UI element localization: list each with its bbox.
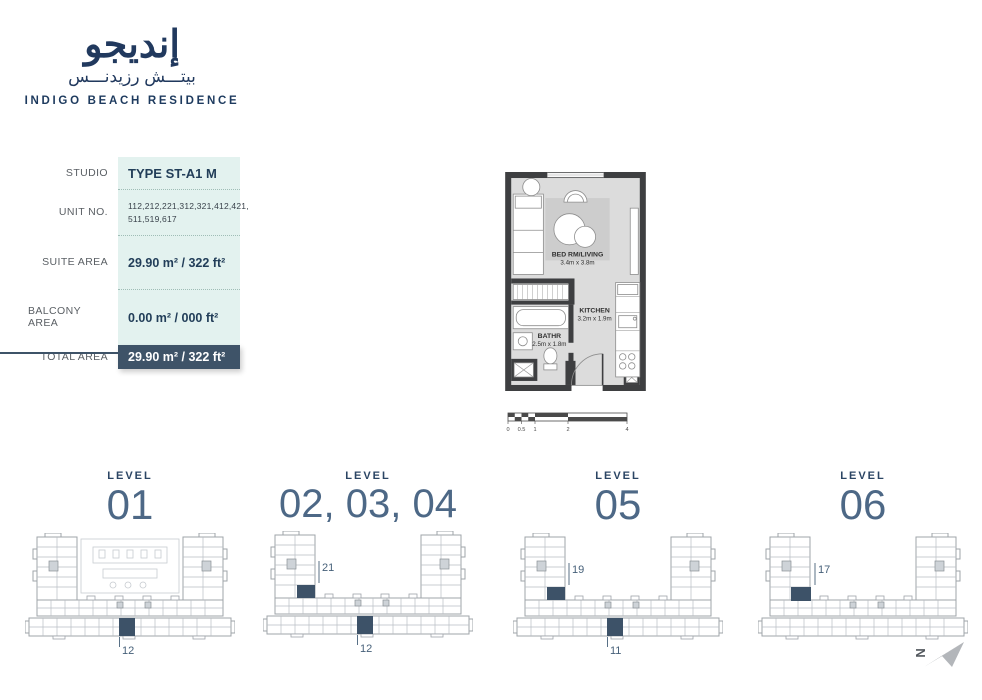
spec-value-balcony-area: 0.00 m² / 000 ft² <box>118 289 240 345</box>
highlight-unit <box>357 616 373 634</box>
level-block-01: LEVEL 01 12 <box>25 470 235 659</box>
wardrobe <box>513 285 568 300</box>
spec-value-suite-area: 29.90 m² / 322 ft² <box>118 235 240 289</box>
logo-arabic-main: إنديجو <box>20 26 244 66</box>
total-area-rule <box>0 352 118 354</box>
logo-arabic-sub: بيتـــش رزيدنـــس <box>20 67 244 87</box>
side-table <box>523 179 540 196</box>
room-label-kitchen: KITCHEN <box>579 308 609 315</box>
scale-tick-0: 0 <box>506 427 509 433</box>
highlight-unit <box>791 587 811 601</box>
level-block-020304: LEVEL 02, 03, 04 21 12 <box>263 470 473 657</box>
scale-bar: 0 0.5 1 2 4 <box>506 412 630 436</box>
level-title: LEVEL <box>263 470 473 482</box>
key-plan-level-01: 12 <box>25 533 235 659</box>
highlight-unit <box>119 618 135 636</box>
spec-value-type: TYPE ST-A1 M <box>118 157 240 189</box>
ottoman <box>574 226 595 247</box>
unit-number: 11 <box>610 645 621 657</box>
north-arrow-icon: N <box>910 640 968 670</box>
scale-tick-1: 1 <box>533 427 536 433</box>
key-plan-level-05: 19 11 <box>513 533 723 659</box>
unit-number: 19 <box>572 564 584 576</box>
spec-label-studio: STUDIO <box>28 157 118 189</box>
spec-label-balcony-area: BALCONY AREA <box>28 289 118 345</box>
highlight-unit <box>547 587 565 600</box>
spec-label-unit-no: UNIT NO. <box>28 189 118 235</box>
scale-tick-4: 4 <box>625 427 628 433</box>
brand-name: INDIGO BEACH RESIDENCE <box>20 95 244 107</box>
level-number-05: 05 <box>513 483 723 527</box>
spec-value-total-area: 29.90 m² / 322 ft² <box>118 345 240 369</box>
unit-floor-plan: BED RM/LIVING 3.4m x 3.8m KITCHEN 3.2m x… <box>505 172 646 391</box>
unit-spec-table: STUDIO TYPE ST-A1 M UNIT NO. 112,212,221… <box>28 157 240 369</box>
brochure-page: إنديجو بيتـــش رزيدنـــس INDIGO BEACH RE… <box>0 0 982 700</box>
spec-label-suite-area: SUITE AREA <box>28 235 118 289</box>
toilet <box>544 348 557 364</box>
brand-logo: إنديجو بيتـــش رزيدنـــس INDIGO BEACH RE… <box>20 26 244 107</box>
level-number-06: 06 <box>758 483 968 527</box>
bench <box>630 208 638 274</box>
north-letter: N <box>913 648 928 657</box>
room-label-bedliving: BED RM/LIVING <box>552 251 604 258</box>
unit-number: 17 <box>818 564 830 576</box>
key-plan-level-020304: 21 12 <box>263 531 473 657</box>
room-label-bathroom: BATHR <box>538 333 561 340</box>
level-block-06: LEVEL 06 17 <box>758 470 968 659</box>
unit-number: 12 <box>360 643 372 655</box>
level-number-01: 01 <box>25 483 235 527</box>
spec-value-unit-no: 112,212,221,312,321,412,421, 511,519,617 <box>118 189 240 235</box>
room-dims-bedliving: 3.4m x 3.8m <box>560 259 594 266</box>
fridge <box>618 285 638 295</box>
spec-label-total-area: TOTAL AREA <box>28 345 118 369</box>
highlight-unit <box>607 618 623 636</box>
level-number-020304: 02, 03, 04 <box>263 483 473 525</box>
level-block-05: LEVEL 05 19 11 <box>513 470 723 659</box>
unit-number: 12 <box>122 645 134 657</box>
room-dims-bathroom: 2.5m x 1.8m <box>532 341 566 348</box>
scale-tick-2: 2 <box>566 427 569 433</box>
room-dims-kitchen: 3.2m x 1.9m <box>577 316 611 323</box>
unit-number: 21 <box>322 562 334 574</box>
scale-tick-05: 0.5 <box>518 427 526 433</box>
highlight-unit <box>297 585 315 598</box>
